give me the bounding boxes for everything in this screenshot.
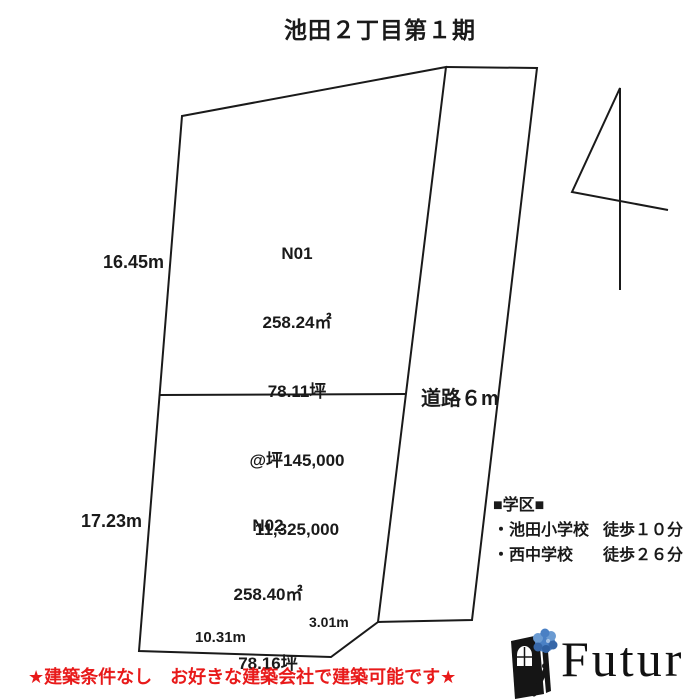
school-walk-time: 徒歩１０分 [603,518,683,543]
school-name: ・池田小学校 [493,518,589,543]
school-district-header: ■学区■ [493,493,683,518]
dimension-label-bottom-right: 3.01m [309,614,349,630]
building-condition-notice: ★建築条件なし お好きな建築会社で建築可能です★ [28,663,456,689]
school-district-panel: ■学区■ ・池田小学校 徒歩１０分 ・西中学校 徒歩２６分 [493,493,683,568]
school-name: ・西中学校 [493,543,573,568]
north-arrow-icon [572,88,668,290]
lot-area-tsubo: 78.11坪 [249,380,344,403]
lot-id: N01 [249,242,344,265]
road-label: 道路６m [421,382,499,411]
lot-area-sqm: 258.24㎡ [249,311,344,334]
company-logo-text: Futur [561,634,684,684]
school-district-item: ・池田小学校 徒歩１０分 [493,518,683,543]
page-title: 池田２丁目第１期 [284,11,476,45]
school-walk-time: 徒歩２６分 [603,543,683,568]
dimension-label-left-lower: 17.23m [81,511,142,532]
logo-flower-icon [533,629,558,654]
lot-area-sqm: 258.40㎡ [220,583,315,606]
land-plot-flyer: 池田２丁目第１期 N01 258.24㎡ 78.11坪 @坪145,000 11… [0,0,700,700]
dimension-label-bottom: 10.31m [195,629,246,646]
school-district-item: ・西中学校 徒歩２６分 [493,543,683,568]
plot-diagram [0,0,700,700]
dimension-label-left-upper: 16.45m [103,252,164,273]
lot-id: N02 [220,514,315,537]
